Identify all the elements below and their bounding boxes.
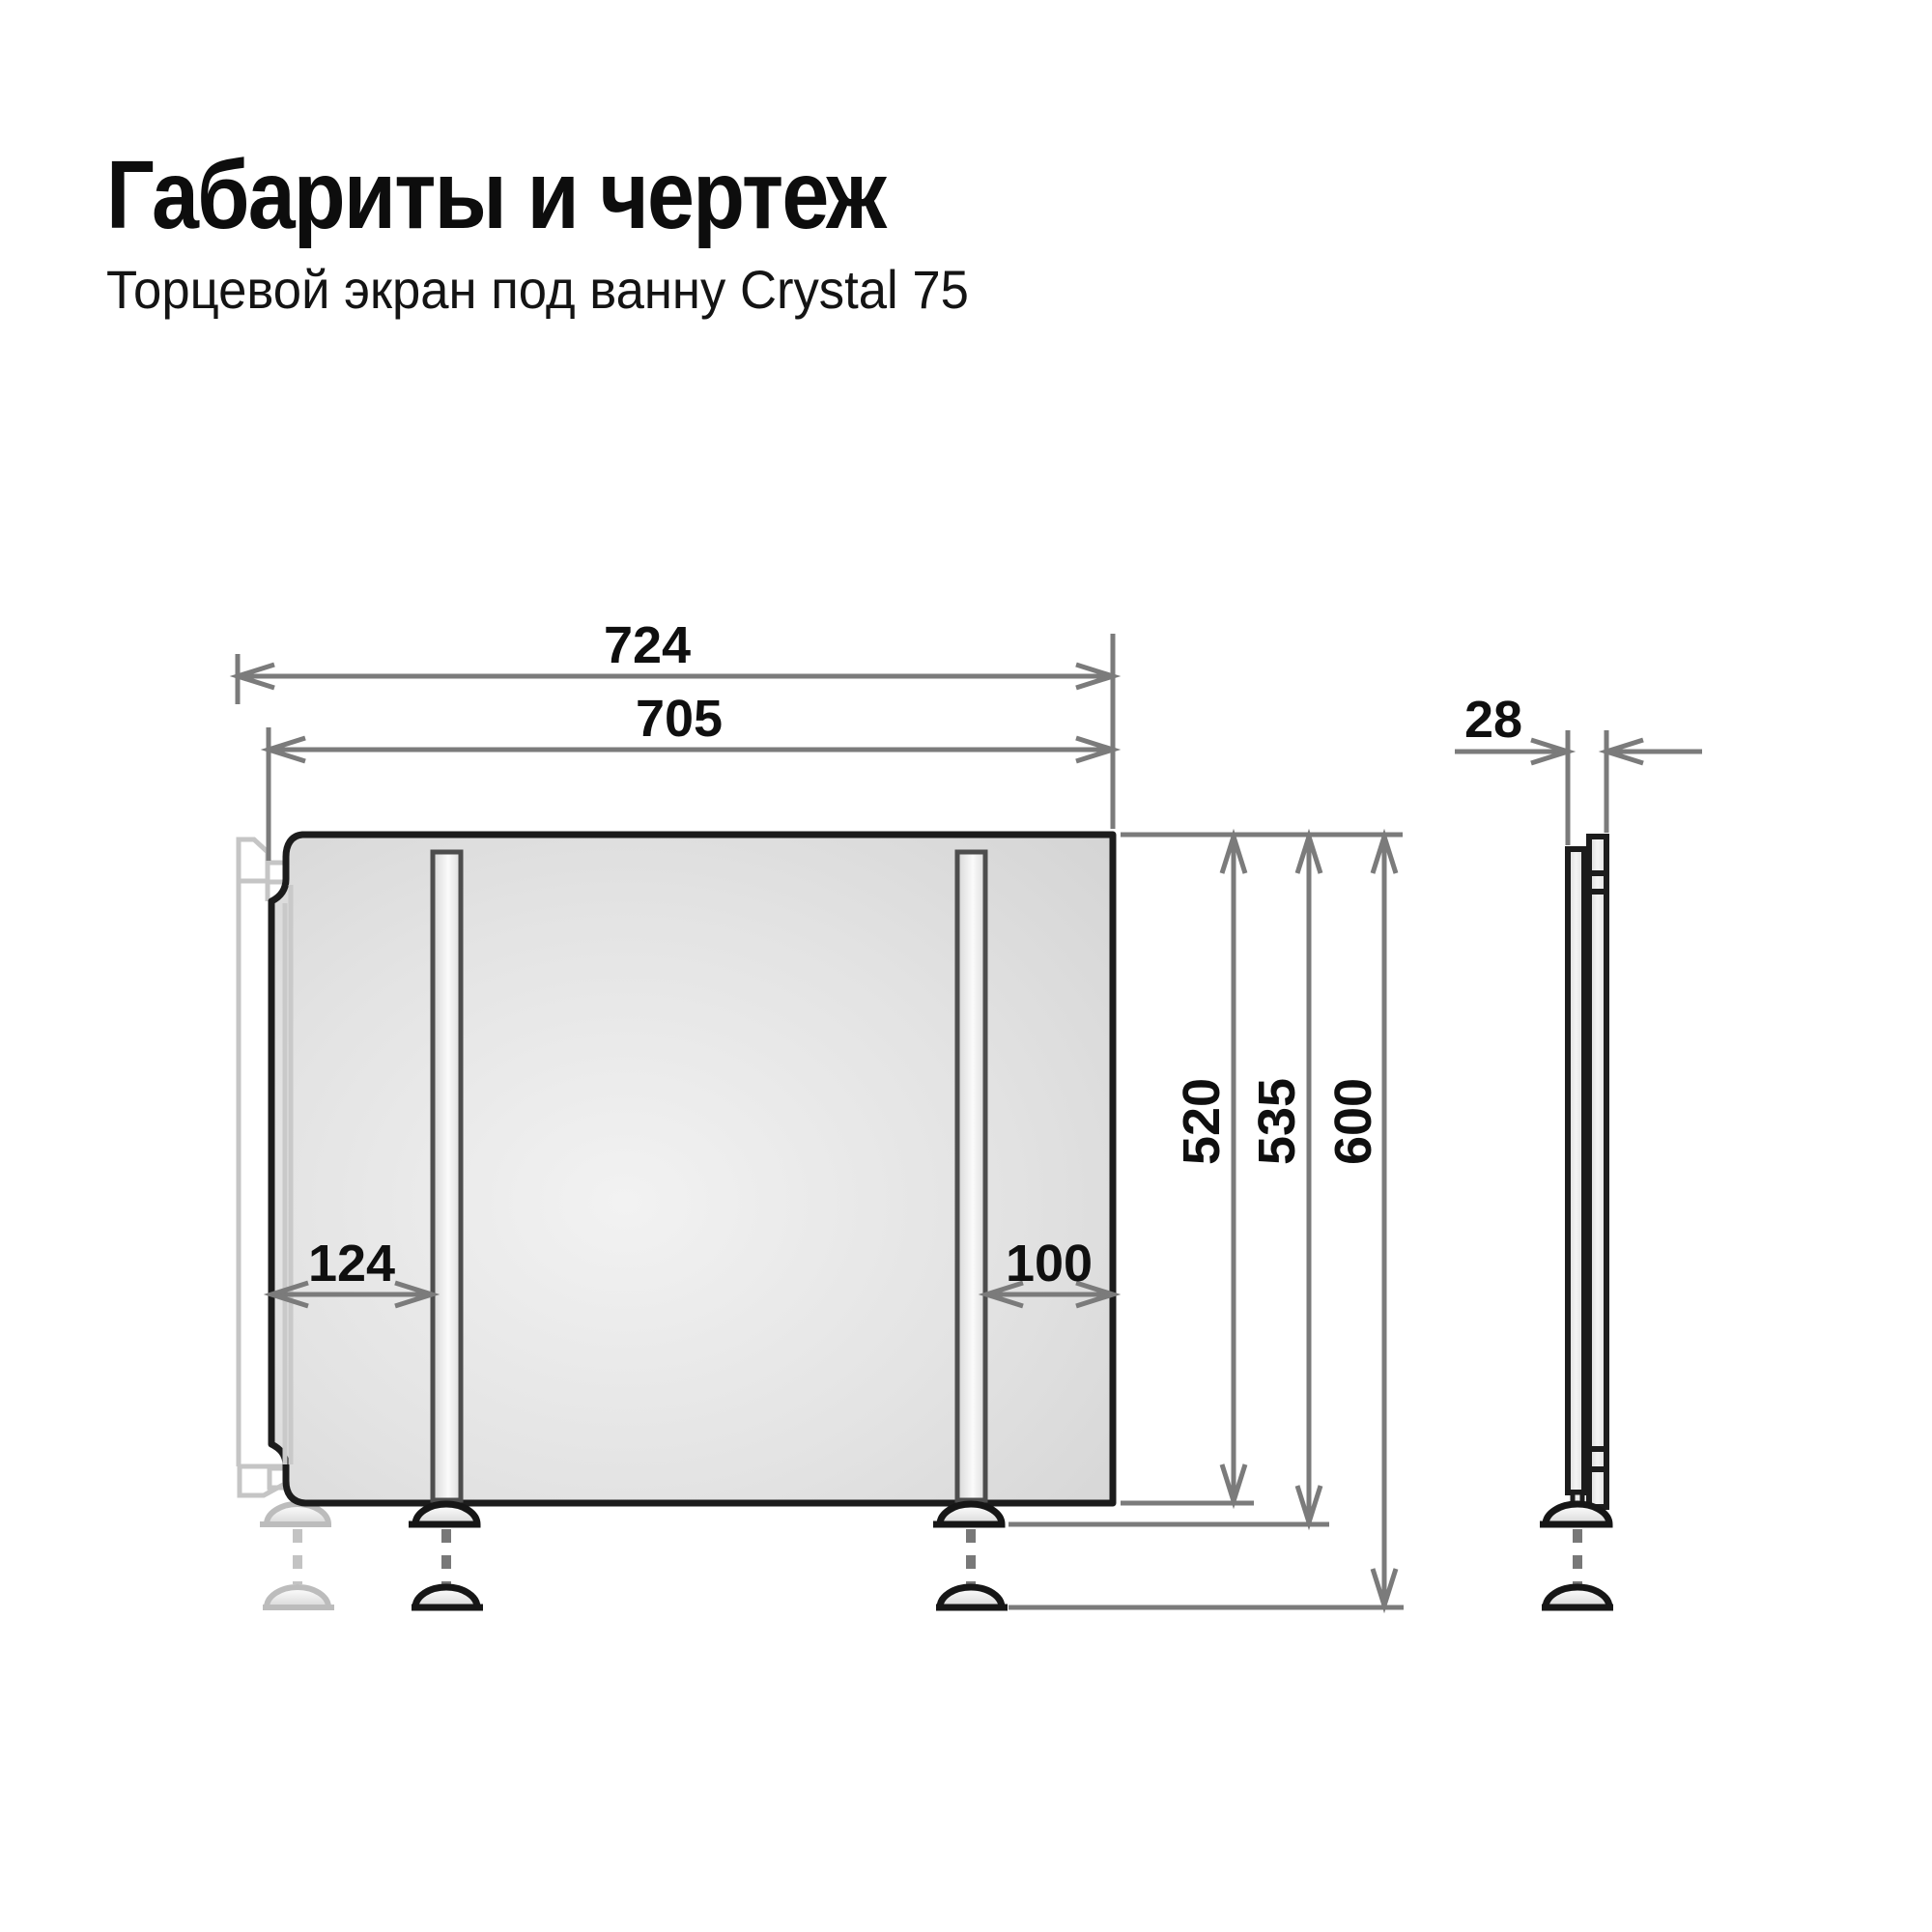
- ghost-foot-upper-dome: [267, 1504, 328, 1524]
- right-mounting-rail: [957, 852, 985, 1500]
- side-foot: [1540, 1504, 1613, 1607]
- front-view: 724 705 124 100 520 535 600: [238, 616, 1404, 1607]
- left-foot: [409, 1504, 483, 1607]
- ghost-rim-top-bracket: [239, 839, 268, 881]
- side-view: 28: [1455, 691, 1702, 1607]
- dim-label-left-leg-offset: 124: [308, 1235, 395, 1293]
- right-foot: [933, 1504, 1008, 1607]
- dim-label-right-leg-offset: 100: [1006, 1235, 1093, 1293]
- left-mounting-rail: [433, 852, 461, 1500]
- side-rail-bar: [1589, 837, 1606, 1507]
- dim-label-height-to-leg-mount: 535: [1248, 1078, 1306, 1165]
- dim-label-overall-width: 724: [604, 616, 691, 674]
- dim-label-overall-height: 600: [1324, 1078, 1382, 1165]
- ghost-foot: [260, 1504, 334, 1607]
- ghost-foot-lower-dome: [267, 1587, 328, 1607]
- dim-label-panel-width: 705: [636, 690, 723, 748]
- page-root: Габариты и чертеж Торцевой экран под ван…: [0, 0, 1932, 1932]
- side-panel-bar: [1568, 849, 1584, 1492]
- dim-label-panel-height: 520: [1173, 1078, 1231, 1165]
- ghost-rim-top-step: [239, 881, 268, 901]
- dim-label-thickness: 28: [1464, 691, 1522, 749]
- technical-drawing: 724 705 124 100 520 535 600: [0, 0, 1932, 1932]
